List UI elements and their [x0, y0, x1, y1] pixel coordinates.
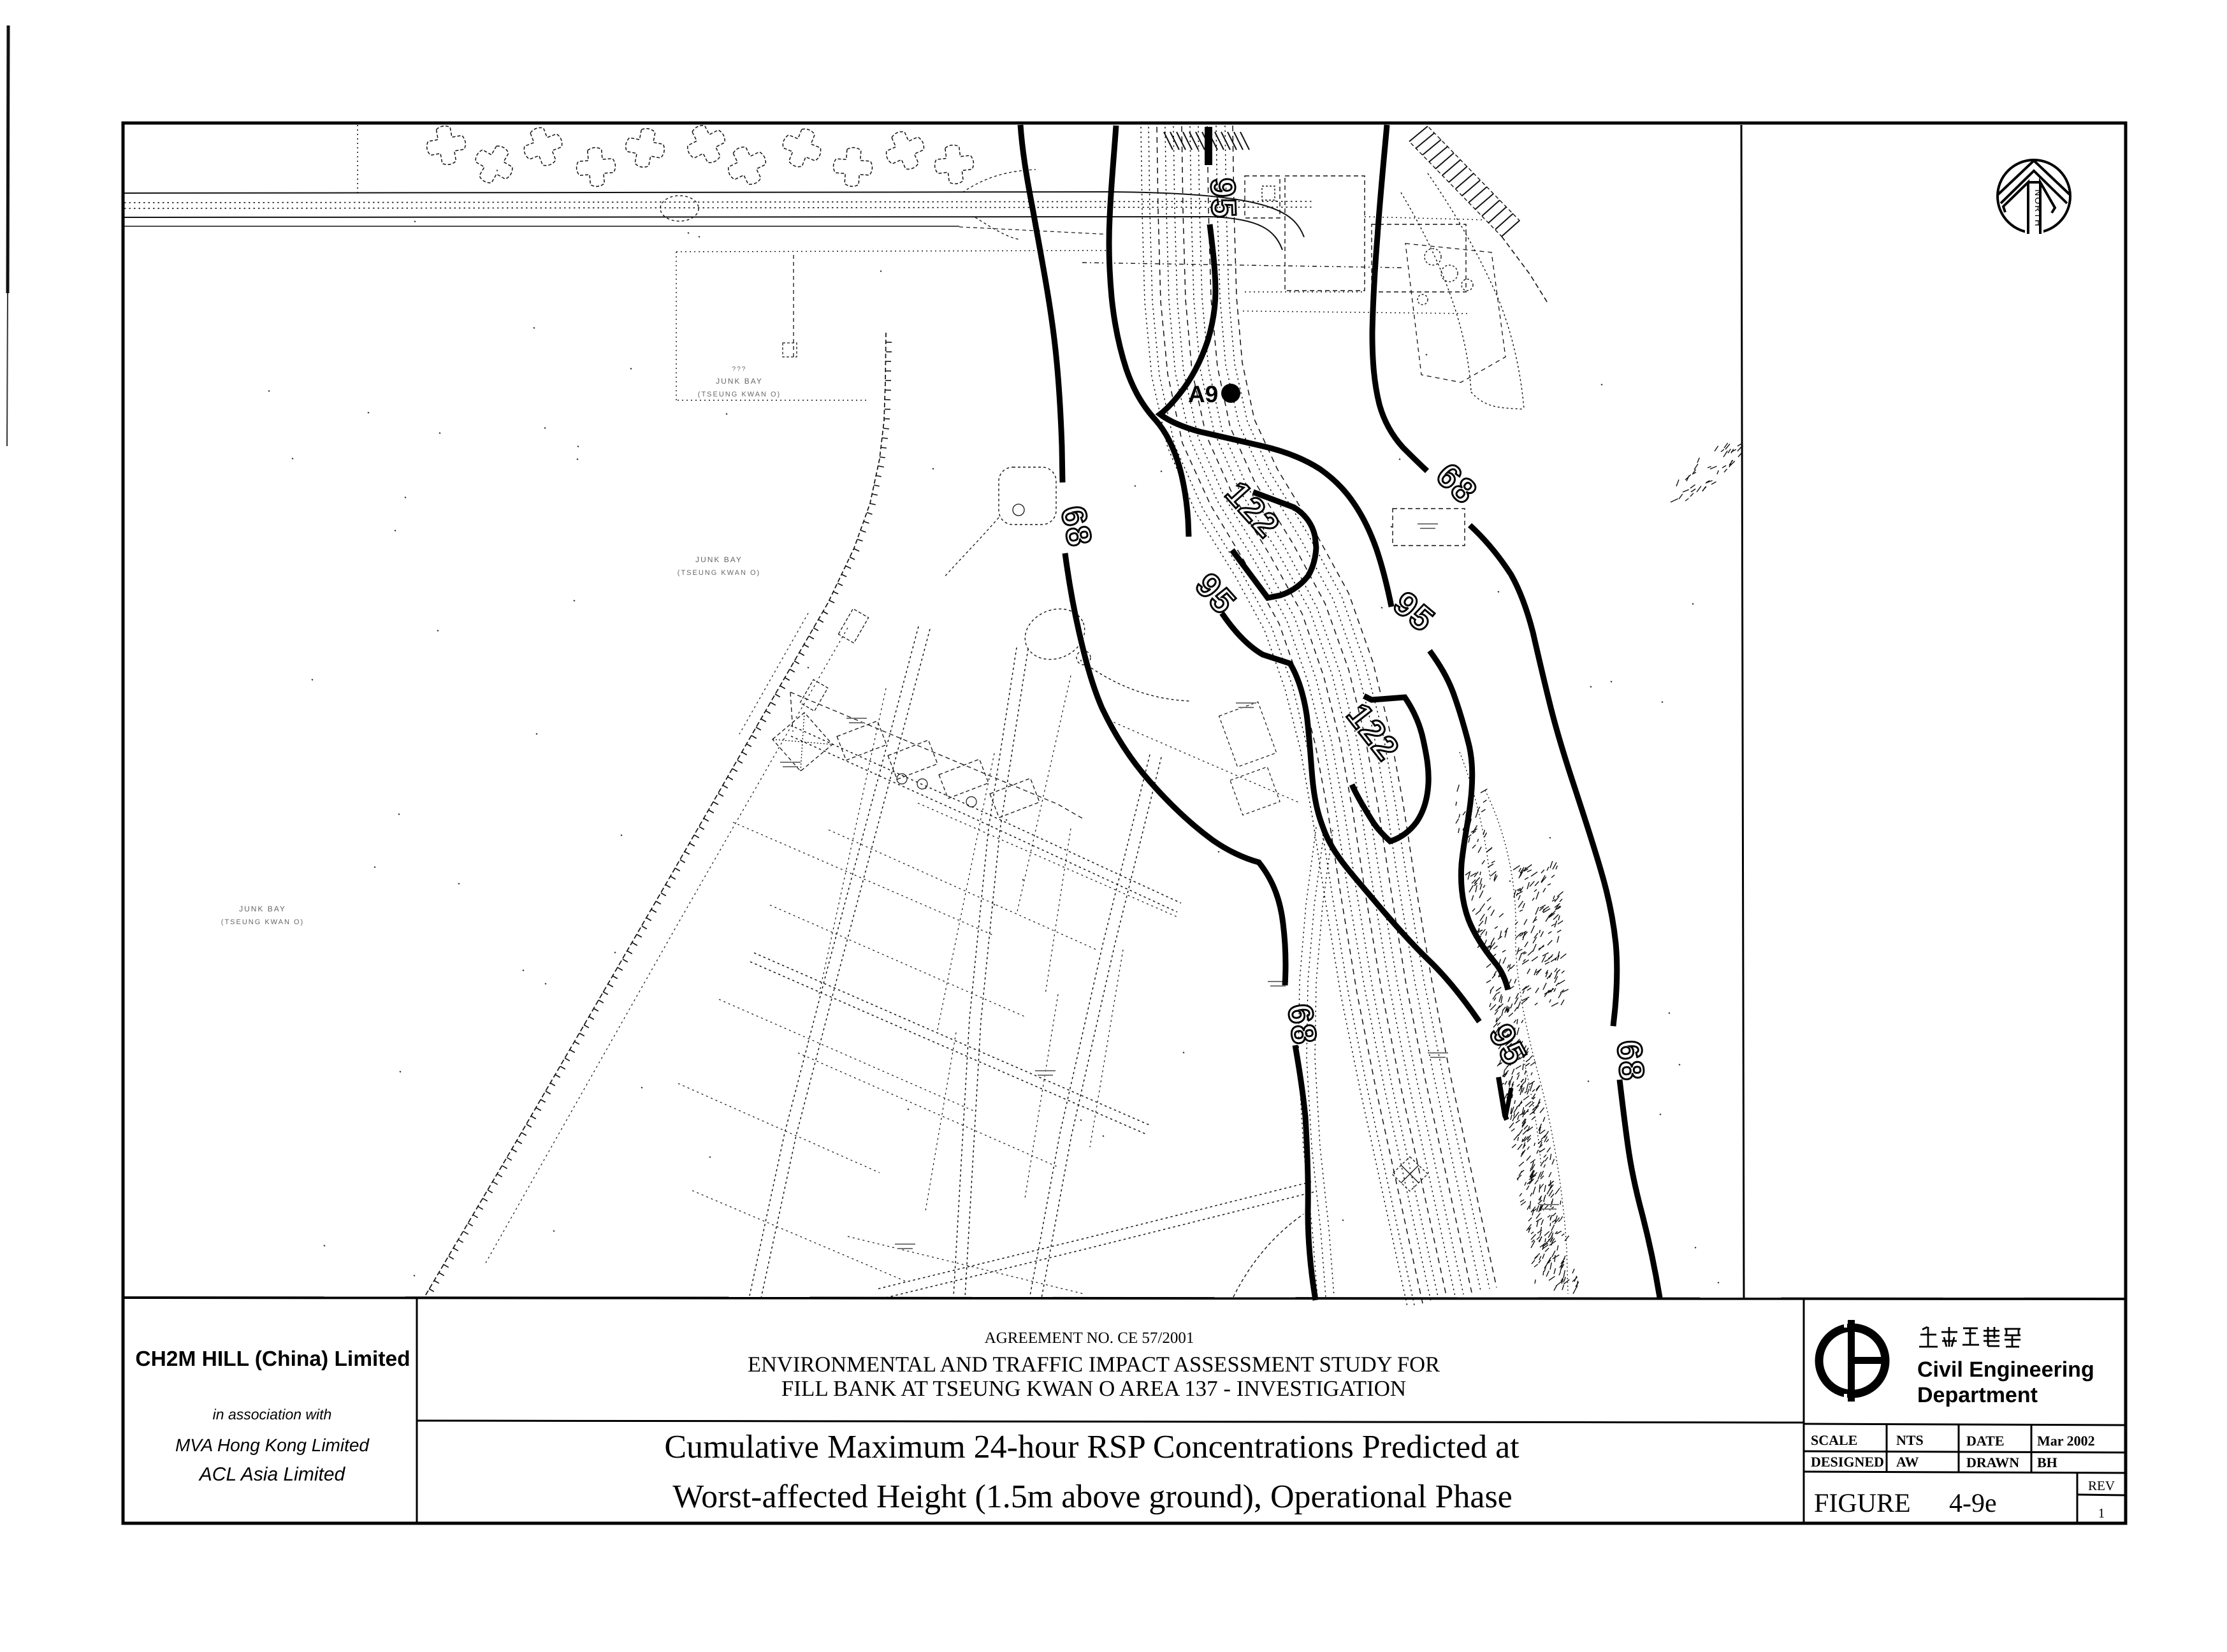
svg-text:95: 95: [1203, 177, 1243, 219]
svg-text:Civil Engineering: Civil Engineering: [1917, 1358, 2094, 1382]
svg-text:68: 68: [1280, 1002, 1324, 1048]
svg-text:JUNK BAY: JUNK BAY: [695, 555, 743, 564]
svg-text:1: 1: [2098, 1505, 2105, 1521]
svg-text:SCALE: SCALE: [1811, 1432, 1857, 1448]
svg-text:CH2M HILL (China) Limited: CH2M HILL (China) Limited: [135, 1347, 410, 1371]
svg-text:A9: A9: [1188, 381, 1218, 407]
svg-text:FIGURE: FIGURE: [1814, 1489, 1911, 1518]
svg-text:JUNK BAY: JUNK BAY: [716, 377, 763, 386]
svg-text:4-9e: 4-9e: [1949, 1489, 1997, 1518]
svg-text:Cumulative Maximum 24-hour RSP: Cumulative Maximum 24-hour RSP Concentra…: [664, 1429, 1520, 1465]
svg-text:(TSEUNG KWAN O): (TSEUNG KWAN O): [678, 569, 760, 577]
svg-text:NORTH: NORTH: [2033, 189, 2043, 228]
svg-text:(TSEUNG KWAN O): (TSEUNG KWAN O): [698, 391, 781, 398]
svg-text:DESIGNED: DESIGNED: [1811, 1454, 1884, 1470]
svg-text:AGREEMENT NO. CE 57/2001: AGREEMENT NO. CE 57/2001: [985, 1330, 1194, 1347]
svg-text:Worst-affected Height (1.5m ab: Worst-affected Height (1.5m above ground…: [672, 1479, 1512, 1515]
svg-text:68: 68: [1609, 1039, 1651, 1083]
svg-text:MVA Hong Kong Limited: MVA Hong Kong Limited: [175, 1435, 370, 1455]
svg-text:Mar 2002: Mar 2002: [2037, 1433, 2095, 1449]
svg-text:DATE: DATE: [1966, 1433, 2005, 1449]
svg-text:AW: AW: [1896, 1454, 1919, 1470]
svg-text:ENVIRONMENTAL AND TRAFFIC IMPA: ENVIRONMENTAL AND TRAFFIC IMPACT ASSESSM…: [748, 1352, 1440, 1377]
svg-text:(TSEUNG KWAN O): (TSEUNG KWAN O): [221, 918, 304, 926]
svg-text:JUNK BAY: JUNK BAY: [239, 904, 286, 913]
svg-text:DRAWN: DRAWN: [1966, 1454, 2019, 1470]
svg-text:in association with: in association with: [213, 1406, 332, 1423]
svg-text:ACL Asia Limited: ACL Asia Limited: [198, 1464, 346, 1485]
svg-text:???: ???: [732, 366, 747, 373]
svg-text:BH: BH: [2037, 1454, 2057, 1470]
svg-text:REV: REV: [2088, 1478, 2115, 1493]
svg-text:FILL BANK AT TSEUNG KWAN O ARE: FILL BANK AT TSEUNG KWAN O AREA 137 - IN…: [781, 1376, 1406, 1401]
svg-text:Department: Department: [1917, 1383, 2038, 1407]
svg-text:NTS: NTS: [1896, 1432, 1924, 1448]
